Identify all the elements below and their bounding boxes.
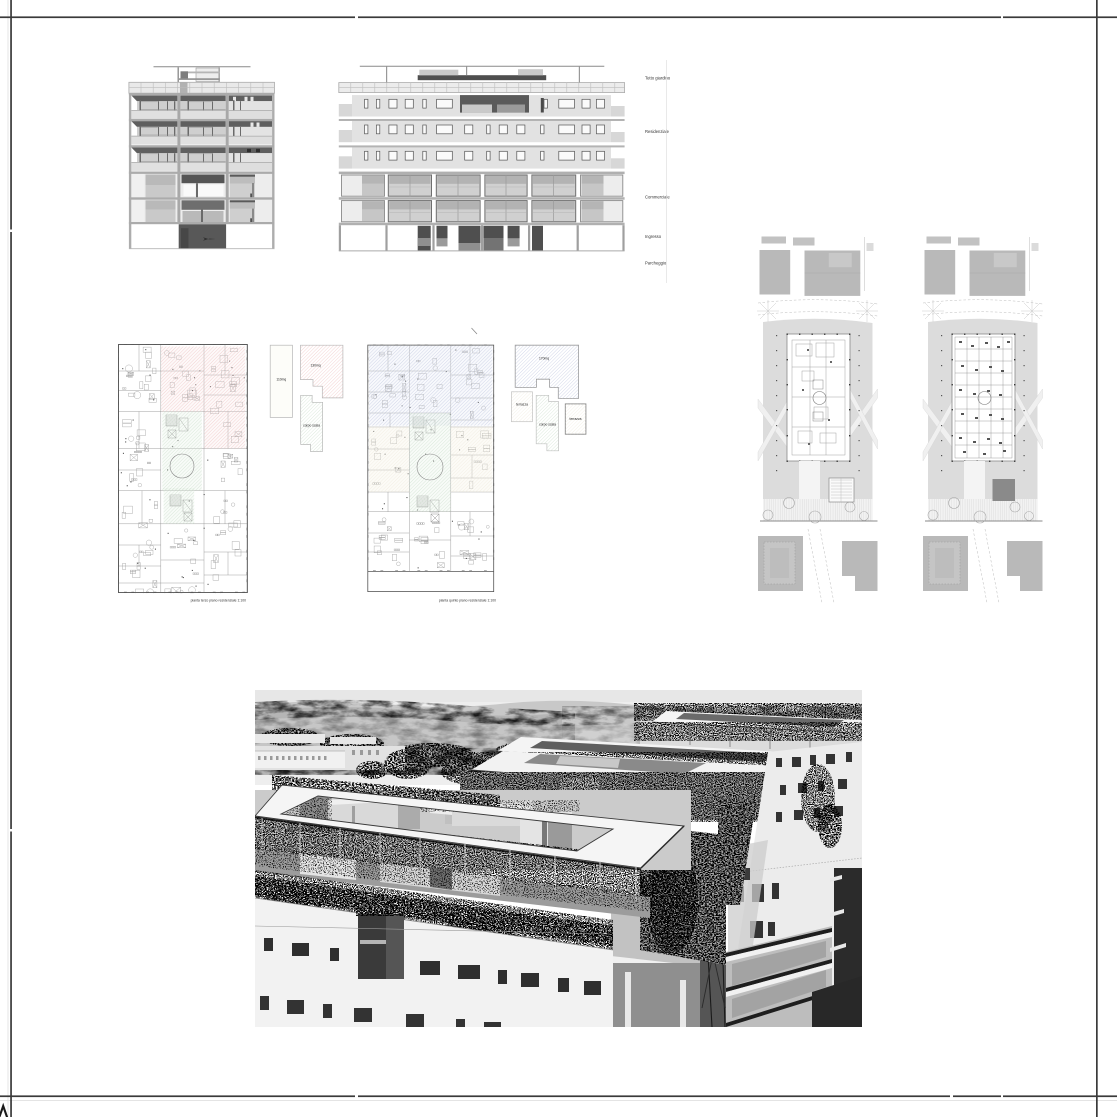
- svg-text:pianta terzo piano residenzial: pianta terzo piano residenziale 1:100: [191, 599, 247, 603]
- svg-text:Tetto giardino: Tetto giardino: [645, 76, 671, 81]
- svg-text:Parcheggio: Parcheggio: [645, 261, 667, 266]
- svg-text:pianta quinto piano residenzia: pianta quinto piano residenziale 1:100: [439, 599, 496, 603]
- svg-text:110mq: 110mq: [276, 378, 286, 382]
- svg-text:corpo scala: corpo scala: [303, 423, 320, 427]
- svg-text:170mq: 170mq: [539, 356, 549, 360]
- svg-text:terrazza: terrazza: [516, 402, 528, 406]
- svg-text:Ingresso: Ingresso: [645, 234, 662, 239]
- svg-text:terrazza: terrazza: [570, 417, 582, 421]
- svg-text:Residenziale: Residenziale: [645, 129, 670, 134]
- svg-text:corpo scala: corpo scala: [539, 423, 556, 427]
- svg-text:130mq: 130mq: [310, 363, 320, 367]
